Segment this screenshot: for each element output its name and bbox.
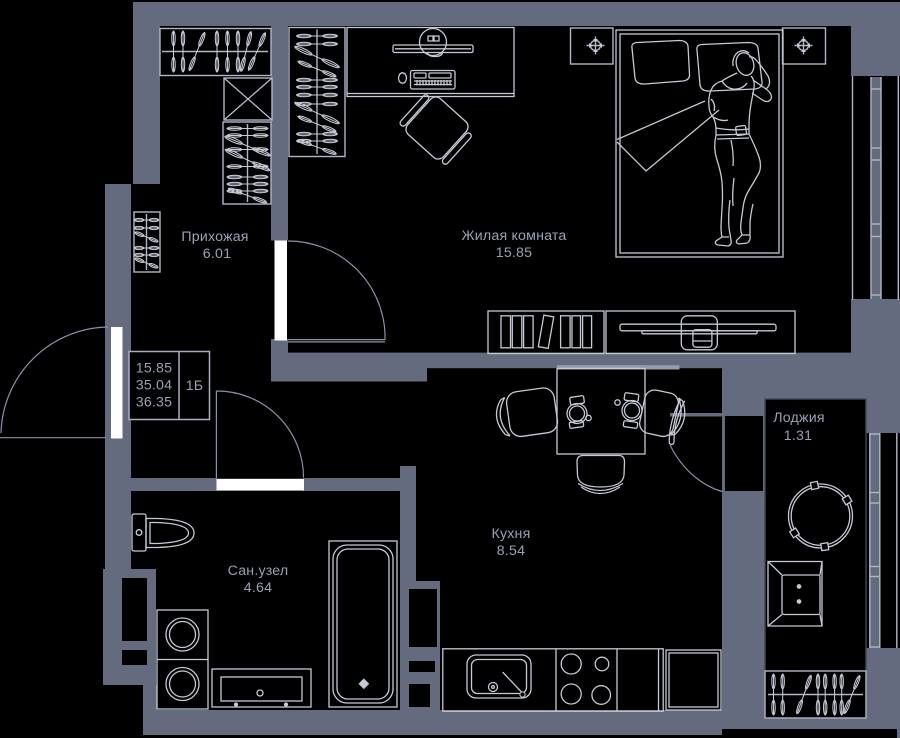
svg-text:Кухня: Кухня [492, 526, 531, 542]
svg-text:8.54: 8.54 [497, 543, 525, 559]
svg-text:Сан.узел: Сан.узел [228, 563, 289, 579]
svg-text:Жилая комната: Жилая комната [461, 228, 566, 244]
svg-text:6.01: 6.01 [203, 246, 231, 262]
svg-text:1Б: 1Б [186, 378, 204, 394]
svg-text:35.04: 35.04 [136, 378, 173, 394]
svg-text:Прихожая: Прихожая [181, 229, 248, 245]
svg-text:36.35: 36.35 [136, 395, 173, 411]
svg-text:4.64: 4.64 [244, 580, 272, 596]
svg-text:1.31: 1.31 [784, 428, 812, 444]
svg-text:15.85: 15.85 [496, 245, 533, 261]
svg-text:Лоджия: Лоджия [773, 410, 824, 426]
svg-text:15.85: 15.85 [136, 361, 173, 377]
